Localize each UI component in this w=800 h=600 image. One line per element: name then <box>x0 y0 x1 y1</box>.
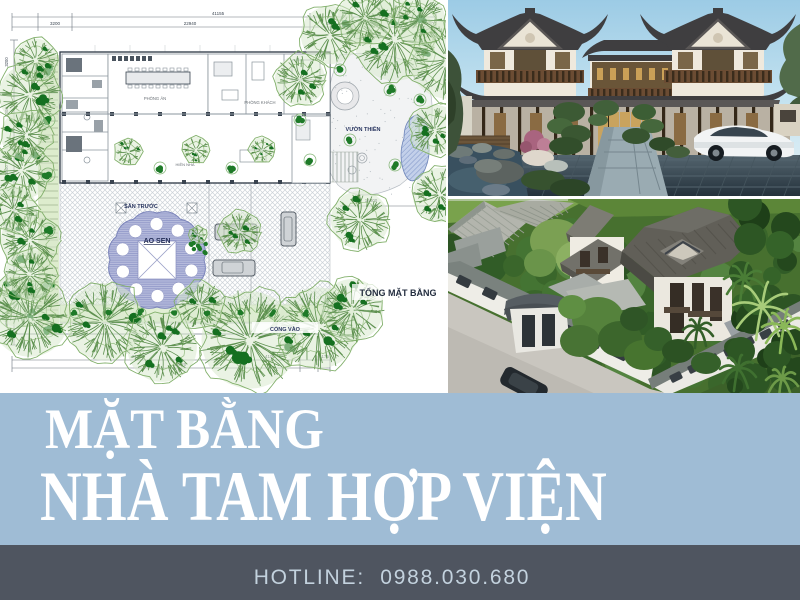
svg-text:SÂN TRƯỚC: SÂN TRƯỚC <box>124 202 158 210</box>
svg-text:CỔNG VÀO: CỔNG VÀO <box>270 326 301 333</box>
svg-text:PHÒNG KHÁCH: PHÒNG KHÁCH <box>244 100 275 105</box>
svg-text:22940: 22940 <box>184 21 197 26</box>
svg-text:3200: 3200 <box>4 57 9 67</box>
svg-text:41155: 41155 <box>212 11 225 16</box>
svg-text:3200: 3200 <box>50 21 61 26</box>
svg-text:PHÒNG ĂN: PHÒNG ĂN <box>144 96 166 101</box>
svg-text:TỔNG MẶT BẰNG: TỔNG MẶT BẰNG <box>360 287 437 298</box>
svg-text:AO SEN: AO SEN <box>144 238 171 245</box>
svg-text:VƯỜN THIỀN: VƯỜN THIỀN <box>346 125 381 133</box>
